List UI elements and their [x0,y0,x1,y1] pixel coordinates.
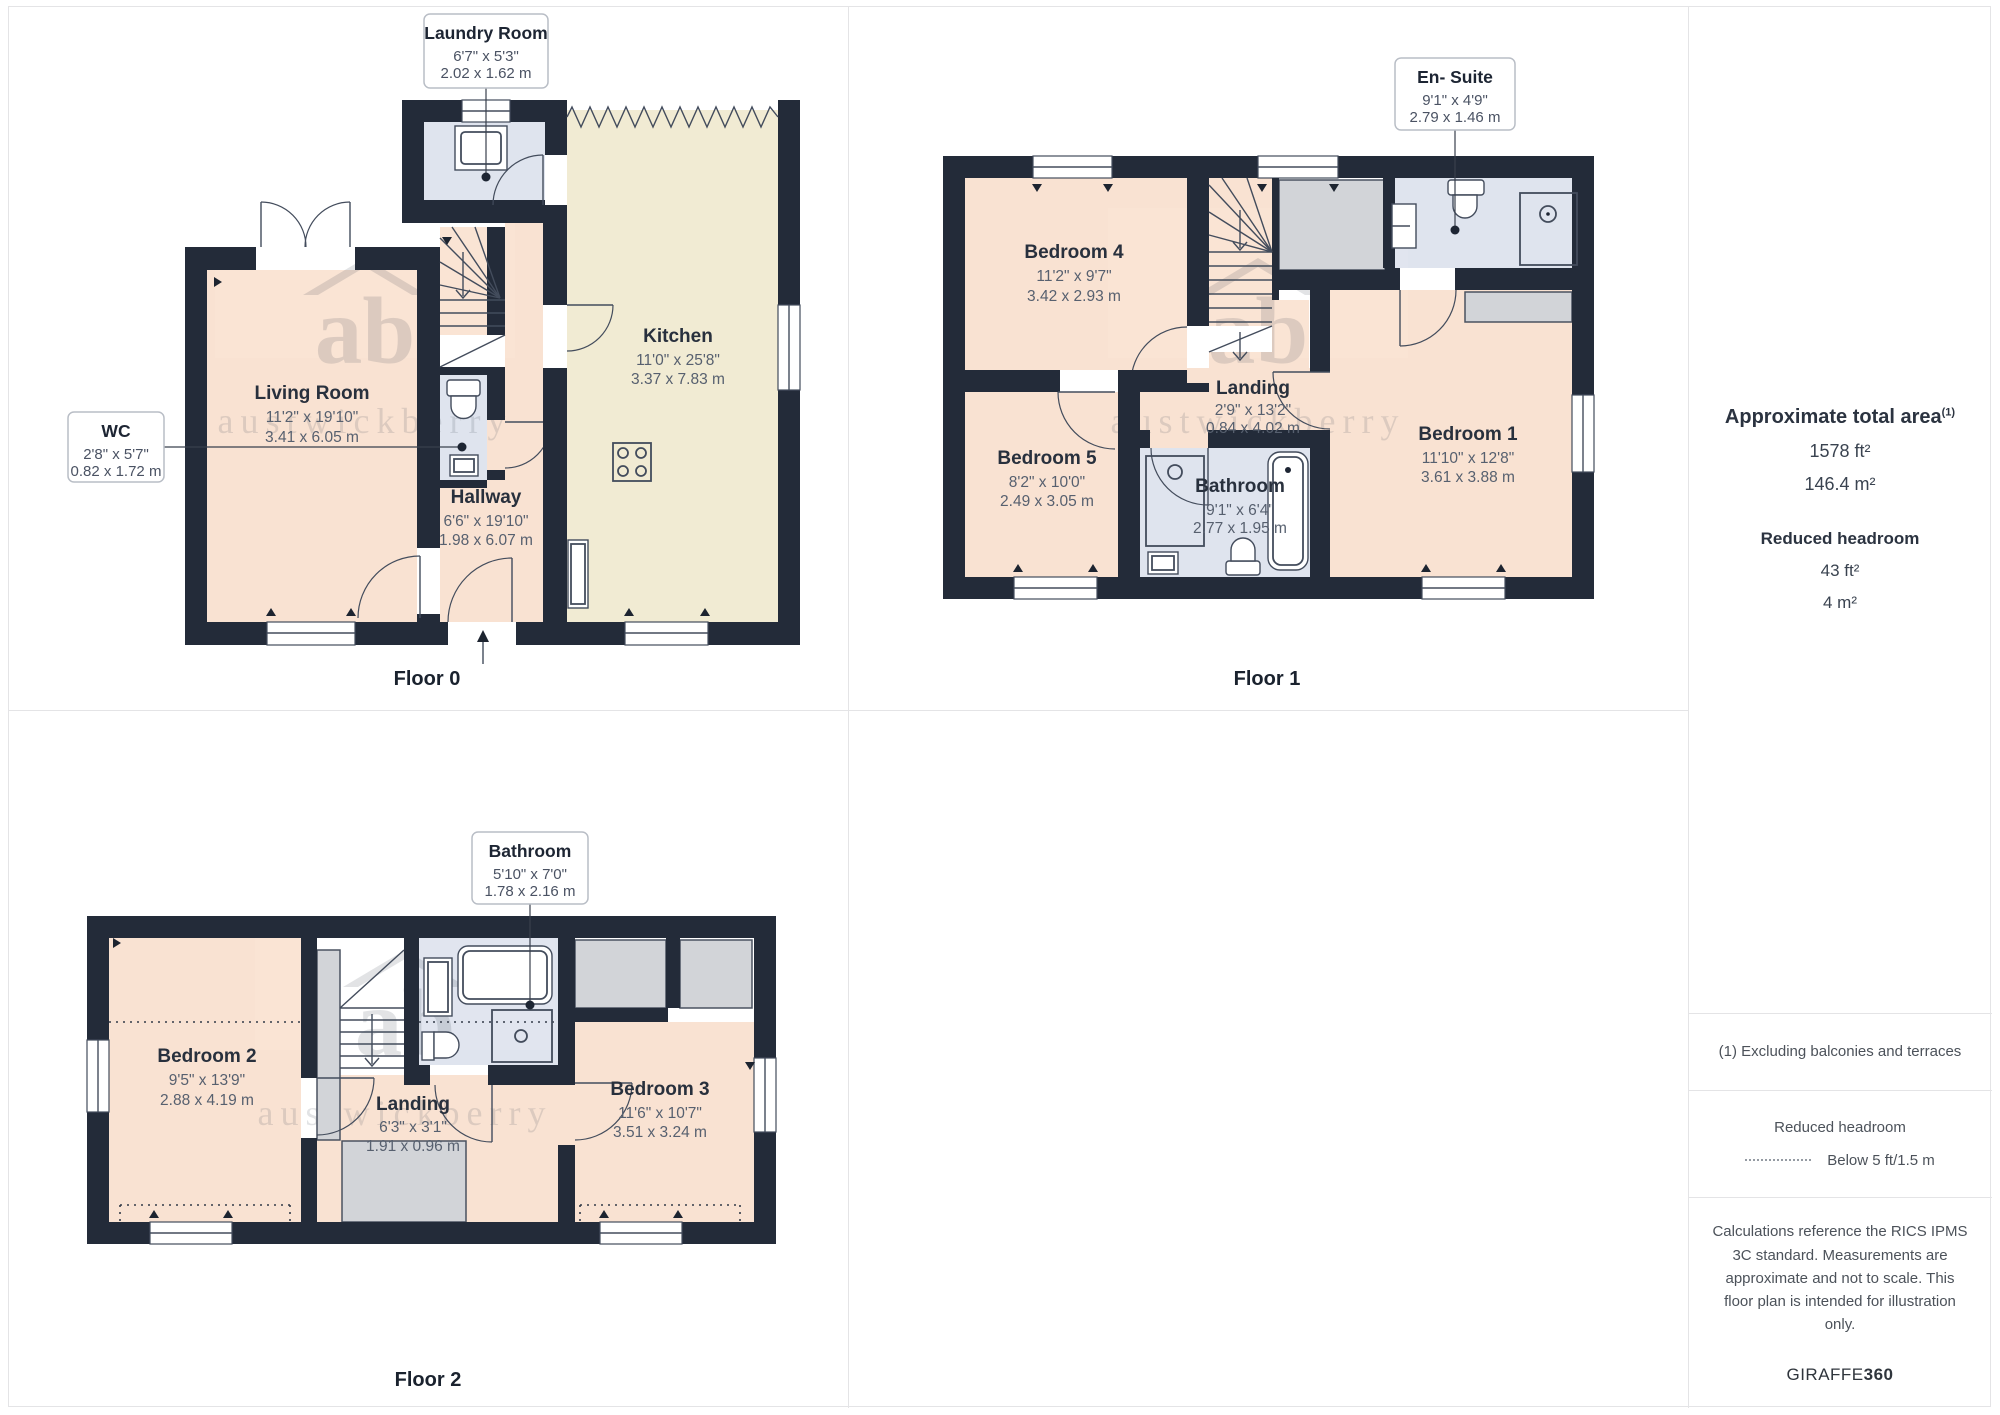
bathtub-icon [458,946,552,1004]
wardrobe [317,950,340,1140]
landing-label: Landing 2'9" x 13'2" 0.84 x 4.02 m [1206,378,1300,437]
svg-text:Bedroom 3: Bedroom 3 [610,1079,709,1100]
bathtub-icon [1268,452,1308,570]
svg-text:Landing: Landing [1216,378,1290,399]
svg-text:WC: WC [101,421,131,441]
sidebar-area-summary: Approximate total area(1) 1578 ft² 146.4… [1688,6,1992,1013]
svg-text:2.49 x 3.05 m: 2.49 x 3.05 m [1000,493,1094,510]
dotted-line-icon [1745,1159,1811,1161]
hallway-label: Hallway 6'6" x 19'10" 1.98 x 6.07 m [439,487,533,549]
bedroom3-label: Bedroom 3 11'6" x 10'7" 3.51 x 3.24 m [610,1079,709,1141]
radiator-icon [568,540,588,608]
svg-text:0.84 x 4.02 m: 0.84 x 4.02 m [1206,420,1300,437]
svg-text:3.37 x 7.83 m: 3.37 x 7.83 m [631,371,725,388]
sidebar-disclaimer: Calculations reference the RICS IPMS 3C … [1688,1197,1992,1408]
kitchen-label: Kitchen 11'0" x 25'8" 3.37 x 7.83 m [631,326,725,388]
floor2-label: Floor 2 [348,1369,508,1392]
svg-text:11'0" x 25'8": 11'0" x 25'8" [636,352,720,369]
svg-text:Bedroom 4: Bedroom 4 [1024,242,1124,263]
svg-text:1.91 x 0.96 m: 1.91 x 0.96 m [366,1138,460,1155]
floor0-plan: ab austwickberry [8,6,848,710]
svg-text:11'6" x 10'7": 11'6" x 10'7" [618,1105,702,1122]
svg-text:2'9" x 13'2": 2'9" x 13'2" [1215,402,1291,419]
svg-text:Bathroom: Bathroom [1195,476,1285,497]
svg-text:6'3" x 3'1": 6'3" x 3'1" [379,1119,447,1136]
footnote-marker: (1) [1942,406,1955,418]
svg-text:Laundry Room: Laundry Room [424,23,547,43]
wardrobe [1279,180,1385,270]
total-area-m: 146.4 m² [1804,474,1875,495]
total-area-title: Approximate total area(1) [1725,406,1955,429]
svg-text:3.61 x 3.88 m: 3.61 x 3.88 m [1421,469,1515,486]
svg-text:2.79 x 1.46 m: 2.79 x 1.46 m [1410,109,1501,126]
living-room-label: Living Room 11'2" x 19'10" 3.41 x 6.05 m [254,383,369,446]
svg-text:2.02 x 1.62 m: 2.02 x 1.62 m [441,65,532,82]
legend-item: Below 5 ft/1.5 m [1827,1152,1935,1169]
svg-text:Bedroom 2: Bedroom 2 [157,1046,256,1067]
svg-text:1.78 x 2.16 m: 1.78 x 2.16 m [485,883,576,900]
landing-label: Landing 6'3" x 3'1" 1.91 x 0.96 m [366,1094,460,1155]
ensuite-area [1395,178,1580,268]
sink-icon [450,455,478,476]
floor0-label: Floor 0 [347,668,507,691]
svg-text:1.98 x 6.07 m: 1.98 x 6.07 m [439,532,533,549]
svg-text:2.77 x 1.95 m: 2.77 x 1.95 m [1193,520,1287,537]
toilet-icon [422,1032,459,1060]
svg-text:En- Suite: En- Suite [1417,67,1493,87]
sink-icon [1148,552,1178,574]
svg-text:6'6" x 19'10": 6'6" x 19'10" [443,513,528,530]
bedroom2-label: Bedroom 2 9'5" x 13'9" 2.88 x 4.19 m [157,1046,256,1109]
bedroom1-label: Bedroom 1 11'10" x 12'8" 3.61 x 3.88 m [1418,424,1518,486]
disclaimer-text: Calculations reference the RICS IPMS 3C … [1709,1220,1971,1336]
svg-text:Kitchen: Kitchen [643,326,713,347]
svg-text:Bathroom: Bathroom [489,841,572,861]
svg-text:11'10" x 12'8": 11'10" x 12'8" [1422,450,1514,467]
svg-text:2.88 x 4.19 m: 2.88 x 4.19 m [160,1092,254,1109]
floorplan-page: ab austwickberry [0,0,2000,1415]
sink-icon [1392,204,1416,248]
svg-text:11'2" x 19'10": 11'2" x 19'10" [266,409,358,426]
svg-text:Bedroom 1: Bedroom 1 [1418,424,1518,445]
bedroom4-label: Bedroom 4 11'2" x 9'7" 3.42 x 2.93 m [1024,242,1124,305]
svg-text:9'1" x 4'9": 9'1" x 4'9" [1422,92,1488,109]
reduced-headroom-ft: 43 ft² [1821,561,1860,581]
svg-text:11'2" x 9'7": 11'2" x 9'7" [1036,268,1111,285]
reduced-headroom-m: 4 m² [1823,593,1857,613]
svg-text:0.82 x 1.72 m: 0.82 x 1.72 m [71,463,162,480]
svg-text:2'8" x 5'7": 2'8" x 5'7" [83,446,149,463]
wardrobe [1465,292,1572,322]
svg-text:Bedroom 5: Bedroom 5 [997,448,1097,469]
svg-text:Living Room: Living Room [254,383,369,404]
bedroom5-label: Bedroom 5 8'2" x 10'0" 2.49 x 3.05 m [997,448,1097,510]
total-area-ft: 1578 ft² [1809,441,1870,462]
floor1-label: Floor 1 [1187,668,1347,691]
wardrobe [680,940,752,1008]
svg-text:5'10" x 7'0": 5'10" x 7'0" [493,866,567,883]
legend-title: Reduced headroom [1774,1119,1906,1136]
svg-text:Hallway: Hallway [451,487,522,508]
washing-machine-icon [455,126,507,170]
svg-text:9'1" x 6'4": 9'1" x 6'4" [1206,502,1274,519]
svg-text:3.41 x 6.05 m: 3.41 x 6.05 m [265,429,359,446]
sidebar-legend: Reduced headroom Below 5 ft/1.5 m [1688,1090,1992,1197]
sidebar-footnote: (1) Excluding balconies and terraces [1688,1013,1992,1090]
giraffe360-logo: GIRAFFE360 [1786,1365,1893,1385]
bedroom3-area [558,1022,754,1222]
floor1-plan: ab austwickberry [848,6,1688,710]
sink-icon [424,958,452,1016]
wardrobe [575,940,666,1008]
svg-text:6'7" x 5'3": 6'7" x 5'3" [453,48,519,65]
footnote-text: (1) Excluding balconies and terraces [1719,1043,1962,1060]
svg-text:3.42 x 2.93 m: 3.42 x 2.93 m [1027,288,1121,305]
reduced-headroom-title: Reduced headroom [1761,529,1920,549]
svg-text:ab: ab [315,278,415,384]
svg-text:8'2" x 10'0": 8'2" x 10'0" [1009,474,1085,491]
svg-text:3.51 x 3.24 m: 3.51 x 3.24 m [613,1124,707,1141]
svg-text:Landing: Landing [376,1094,450,1115]
bathroom-label: Bathroom 9'1" x 6'4" 2.77 x 1.95 m [1193,476,1287,537]
svg-text:9'5" x 13'9": 9'5" x 13'9" [169,1072,245,1089]
floor2-plan: ab austwickberry [8,710,848,1408]
